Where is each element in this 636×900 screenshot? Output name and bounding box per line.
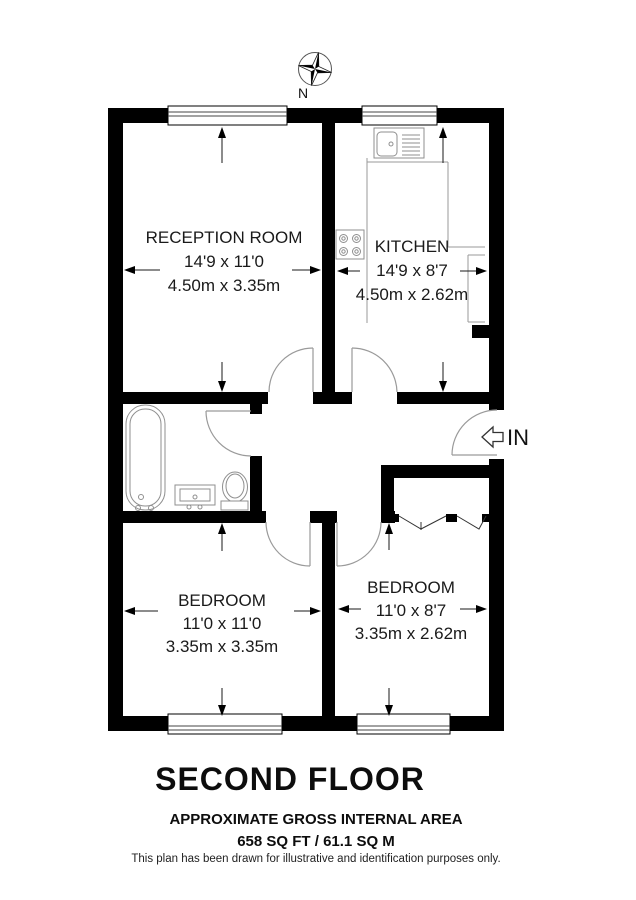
wall-bathroom-right	[250, 456, 262, 511]
toilet-icon	[221, 472, 248, 510]
room-imperial-dims: 14'9 x 8'7	[376, 261, 448, 280]
disclaimer: This plan has been drawn for illustrativ…	[131, 853, 500, 865]
wall-right-upper	[489, 108, 504, 410]
bathtub-icon	[126, 405, 165, 511]
room-label-bedroom-right: BEDROOM 11'0 x 8'7 3.35m x 2.62m	[355, 578, 467, 643]
room-name: BEDROOM	[178, 591, 266, 610]
window-reception	[168, 106, 287, 125]
door-bedroom-left	[266, 522, 310, 566]
area-heading: APPROXIMATE GROSS INTERNAL AREA	[169, 811, 462, 828]
wall-right-lower	[489, 459, 504, 731]
window-bedroom-left	[168, 714, 282, 734]
room-imperial-dims: 11'0 x 11'0	[183, 614, 262, 633]
wall-bedroom-divider	[322, 511, 335, 716]
wall-bedroom-right-top	[381, 465, 504, 478]
wall-kitchen-pier	[472, 325, 489, 338]
room-metric-dims: 4.50m x 2.62m	[356, 285, 468, 304]
wall-hall-t-base	[313, 392, 352, 404]
room-metric-dims: 3.35m x 3.35m	[166, 637, 278, 656]
room-name: KITCHEN	[375, 237, 450, 256]
wall-top	[108, 108, 504, 123]
entrance-in-arrow-icon	[482, 427, 503, 447]
door-bathroom	[206, 411, 251, 456]
wall-bathroom-bottom	[120, 511, 266, 523]
area-value: 658 SQ FT / 61.1 SQ M	[237, 833, 395, 850]
door-kitchen	[352, 348, 397, 392]
door-bedroom-right	[337, 522, 381, 566]
compass-icon: N	[298, 52, 332, 101]
floor-plan-svg: N	[0, 0, 636, 900]
floorplan-page: N	[0, 0, 636, 900]
wall-left	[108, 108, 123, 731]
room-name: BEDROOM	[367, 578, 455, 597]
sink-icon	[374, 128, 424, 158]
basin-icon	[175, 485, 215, 509]
room-label-bedroom-left: BEDROOM 11'0 x 11'0 3.35m x 3.35m	[166, 591, 278, 656]
wall-reception-bottom	[120, 392, 268, 404]
compass-north-label: N	[298, 85, 308, 101]
wall-kitchen-bottom	[397, 392, 489, 404]
door-reception	[269, 348, 313, 392]
room-imperial-dims: 14'9 x 11'0	[184, 252, 264, 271]
window-kitchen	[362, 106, 437, 125]
room-imperial-dims: 11'0 x 8'7	[376, 601, 446, 620]
wall-bedroom-right-left	[381, 465, 394, 522]
entrance-in-label: IN	[507, 425, 529, 450]
floor-title: SECOND FLOOR	[155, 761, 425, 797]
wall-bathroom-right-stub	[250, 404, 262, 414]
room-metric-dims: 4.50m x 3.35m	[168, 276, 280, 295]
window-bedroom-right	[357, 714, 450, 734]
room-name: RECEPTION ROOM	[146, 228, 303, 247]
room-label-reception: RECEPTION ROOM 14'9 x 11'0 4.50m x 3.35m	[146, 228, 303, 295]
hob-icon	[336, 230, 364, 259]
room-metric-dims: 3.35m x 2.62m	[355, 624, 467, 643]
wardrobe-doors	[391, 514, 490, 530]
wall-reception-kitchen-divider	[322, 120, 335, 392]
